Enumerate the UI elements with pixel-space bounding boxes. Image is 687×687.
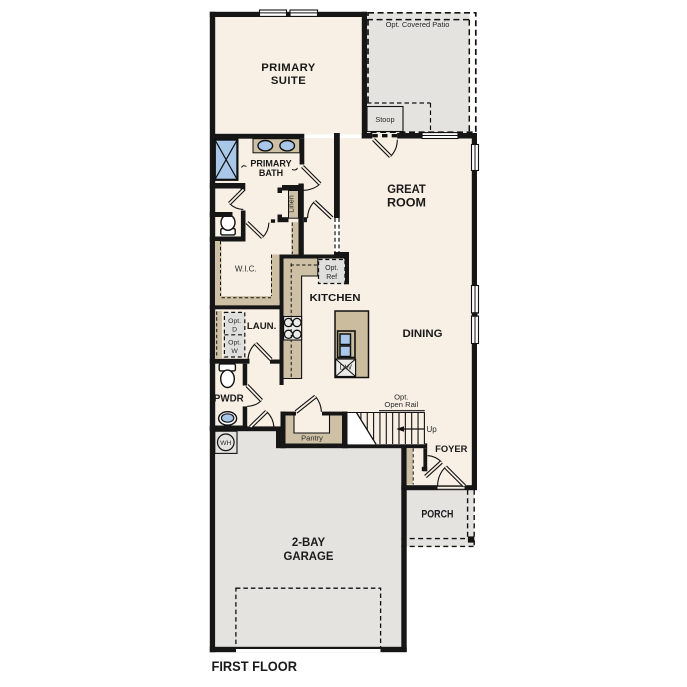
svg-text:Opt.: Opt. — [228, 340, 241, 347]
svg-text:W: W — [231, 348, 238, 355]
svg-text:Open Rail: Open Rail — [384, 400, 418, 409]
svg-text:D: D — [232, 326, 237, 333]
svg-text:PRIMARY: PRIMARY — [261, 62, 316, 74]
svg-text:FOYER: FOYER — [435, 443, 468, 454]
svg-text:PRIMARY: PRIMARY — [250, 158, 291, 168]
svg-text:FIRST FLOOR: FIRST FLOOR — [212, 658, 298, 674]
svg-text:BATH: BATH — [259, 168, 283, 178]
svg-text:Opt.: Opt. — [325, 265, 338, 272]
svg-text:WH: WH — [220, 440, 231, 447]
svg-text:W.I.C.: W.I.C. — [235, 264, 257, 273]
svg-text:Opt.: Opt. — [228, 318, 241, 325]
svg-text:KITCHEN: KITCHEN — [310, 292, 361, 304]
svg-text:Linen: Linen — [287, 195, 296, 213]
svg-text:LAUN.: LAUN. — [247, 321, 277, 332]
svg-text:2-BAY: 2-BAY — [292, 535, 325, 549]
svg-text:Up: Up — [427, 425, 438, 434]
svg-text:ROOM: ROOM — [387, 198, 426, 210]
svg-text:DINING: DINING — [403, 328, 443, 340]
svg-text:SUITE: SUITE — [271, 75, 306, 87]
svg-text:Opt. Covered Patio: Opt. Covered Patio — [386, 20, 450, 29]
svg-text:GARAGE: GARAGE — [284, 549, 334, 563]
svg-text:PWDR: PWDR — [214, 394, 244, 405]
svg-text:DW: DW — [339, 362, 352, 371]
svg-text:PORCH: PORCH — [421, 508, 453, 520]
svg-text:Pantry: Pantry — [301, 433, 323, 442]
svg-text:Ref: Ref — [326, 274, 337, 281]
svg-text:GREAT: GREAT — [387, 184, 426, 196]
svg-text:Stoop: Stoop — [375, 115, 394, 124]
